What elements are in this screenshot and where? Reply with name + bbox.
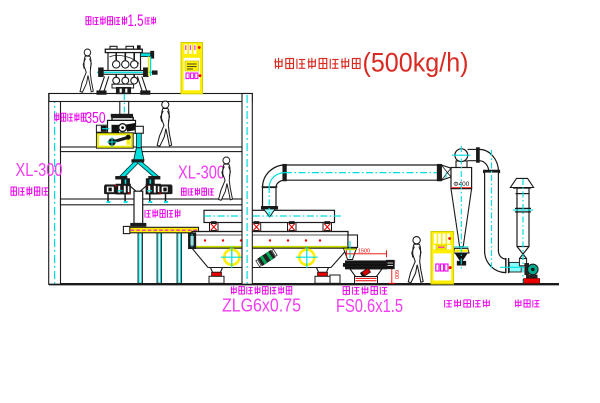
svg-text:1500: 1500 — [358, 249, 370, 255]
svg-text:350: 350 — [86, 110, 106, 127]
svg-text:1.5: 1.5 — [128, 12, 144, 30]
svg-text:ZLG6x0.75: ZLG6x0.75 — [222, 296, 301, 316]
svg-text:(500kg/h): (500kg/h) — [363, 48, 469, 78]
svg-text:FS0.6x1.5: FS0.6x1.5 — [336, 295, 403, 316]
svg-text:XL-300: XL-300 — [16, 159, 63, 180]
svg-text:XL-300: XL-300 — [178, 162, 225, 183]
svg-text:600: 600 — [393, 270, 399, 279]
